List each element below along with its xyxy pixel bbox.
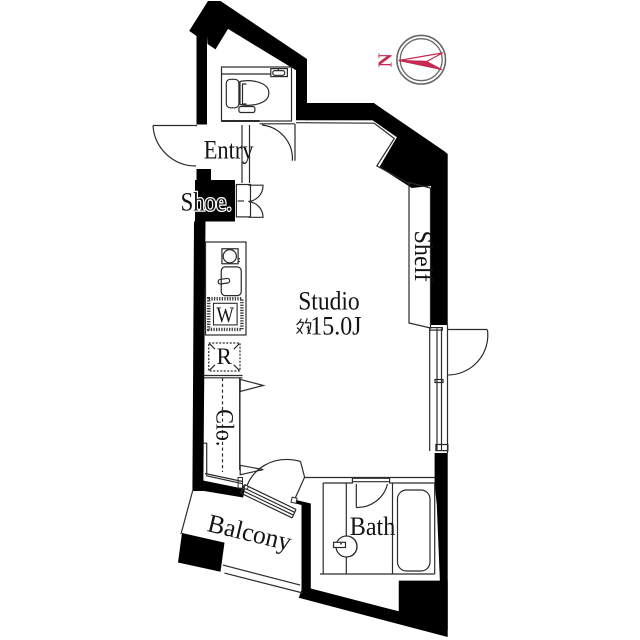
svg-text:Bath: Bath: [350, 512, 396, 541]
svg-text:15.0J: 15.0J: [310, 312, 361, 341]
svg-text:W: W: [216, 302, 234, 327]
svg-text:Entry: Entry: [204, 135, 254, 164]
svg-text:Shelf: Shelf: [409, 231, 436, 283]
svg-text:Clo.: Clo.: [211, 409, 238, 446]
svg-text:N: N: [376, 53, 397, 67]
svg-text:R: R: [217, 344, 233, 369]
svg-text:Shoe.: Shoe.: [181, 187, 232, 216]
